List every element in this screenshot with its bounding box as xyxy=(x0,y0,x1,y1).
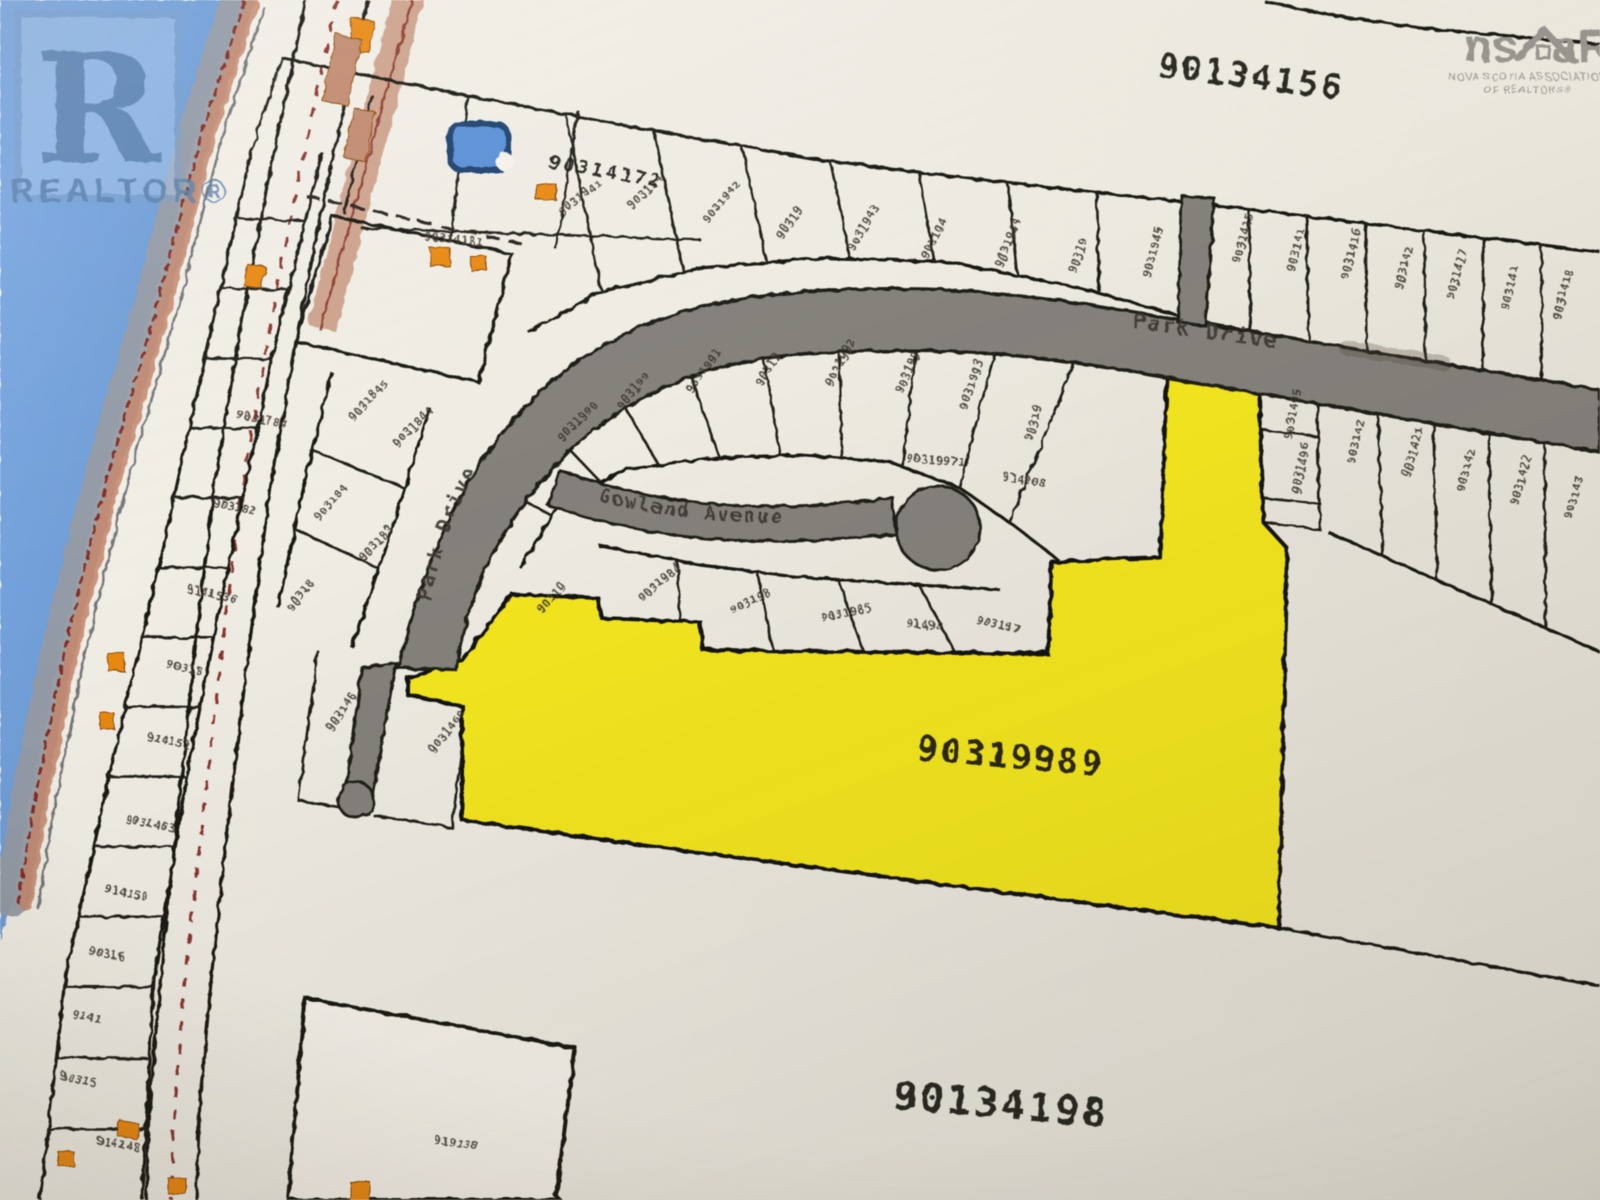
realtor-logo-label: REALTOR® xyxy=(10,172,231,209)
nsar-subtext-1: NOVA SCOTIA ASSOCIATION xyxy=(1448,72,1600,83)
building-footprint xyxy=(100,713,114,729)
building-footprint xyxy=(108,653,124,671)
parcel-number-micro: 9031496 xyxy=(1289,441,1312,495)
parcel-map-photo: Park Drive Park Drive Gowland Avenue 903… xyxy=(0,0,1600,1200)
connector-road xyxy=(1178,196,1214,326)
cul-de-sac-bulb xyxy=(896,486,980,570)
building-footprint xyxy=(350,1182,370,1200)
parcel-number-micro: 90319971 xyxy=(906,451,966,469)
parcel-number-micro: 903182 xyxy=(211,495,257,518)
building-footprint xyxy=(168,1178,186,1194)
parcel-number-micro: 90318 xyxy=(283,576,317,614)
parcel-number-micro: 90319 xyxy=(773,203,806,241)
parcel-number-micro: 9031844 xyxy=(390,403,436,450)
parcel-number-micro: 9031421 xyxy=(1399,425,1426,479)
parcel-number-micro: 90315 xyxy=(59,1069,98,1090)
parcel-number-micro: 9031422 xyxy=(1507,453,1534,507)
building-footprint xyxy=(58,1152,74,1166)
parcel-number-micro: 9031463 xyxy=(123,811,177,835)
parcel-number-micro: 9031942 xyxy=(700,177,744,226)
parcel-number-micro: 9031943 xyxy=(844,201,882,253)
lot-divider xyxy=(1010,356,1077,523)
parcel-number-micro: 903184 xyxy=(312,481,351,524)
house-icon-window xyxy=(1537,46,1549,58)
parcel-number-micro: 90318 xyxy=(165,657,204,678)
parcel-number-micro: 903142 xyxy=(1453,446,1478,493)
lot-divider xyxy=(174,497,243,498)
lot-divider xyxy=(654,130,683,272)
lot-divider xyxy=(190,428,258,429)
lot-divider xyxy=(758,572,773,652)
lot-divider xyxy=(236,218,305,221)
parcel-number-micro: 903197 xyxy=(975,613,1021,636)
lot-strip-edge xyxy=(278,372,332,608)
parcel-number-micro: 90319 xyxy=(1066,235,1091,275)
lot-divider xyxy=(1378,401,1383,556)
lot-divider xyxy=(1424,231,1425,364)
parcel-number-micro: 90316 xyxy=(87,943,126,964)
parcel-number-micro: 914150 xyxy=(103,881,149,904)
parcel-number-micro: 903199 xyxy=(892,349,923,395)
parcel-number-micro: 903142 xyxy=(1391,244,1416,291)
building-footprint xyxy=(244,264,266,289)
parcel-number-bottom: 90134198 xyxy=(891,1073,1111,1138)
parcel-number-top-right: 90134156 xyxy=(1156,46,1347,109)
nsar-logo: ns aR NOVA SCOTIA ASSOCIATION OF REALTOR… xyxy=(1448,20,1600,96)
lot-divider xyxy=(79,916,164,917)
lot-divider xyxy=(65,987,154,988)
parcel-number-micro: 9031415 xyxy=(1229,211,1256,265)
lot-divider xyxy=(1366,223,1367,352)
lot-divider xyxy=(742,146,766,262)
nsar-subtext-2: OF REALTORS® xyxy=(1483,85,1572,96)
parcel-number-micro: 9031418 xyxy=(1549,267,1576,321)
parcel-number-micro: 9031944 xyxy=(992,216,1024,269)
parcel-number-micro: 9031416 xyxy=(1337,227,1364,281)
parcel-number-micro: 9031984 xyxy=(635,560,684,604)
nsar-logo-ar: aR xyxy=(1552,20,1600,72)
lot-divider xyxy=(1433,414,1437,580)
lot-divider xyxy=(1489,426,1491,604)
parcel-number-micro: 903142 xyxy=(1343,418,1368,465)
parcel-number-micro: 90319 xyxy=(1021,403,1045,443)
parcel-boundaries xyxy=(40,98,1600,1200)
parcel-number-micro: 9031945 xyxy=(1139,225,1166,279)
building-footprint xyxy=(470,256,486,270)
parcel-number-micro: 903143 xyxy=(1561,474,1586,521)
parcel-number-micro: 903183 xyxy=(356,522,396,564)
lot-divider xyxy=(1097,192,1099,293)
stub-road-bulb xyxy=(338,782,374,818)
lot-divider xyxy=(1483,238,1484,375)
parcel-number-micro: 903141 xyxy=(1283,226,1308,273)
parcel-number-micro: 903141 xyxy=(1497,264,1522,311)
lot-divider xyxy=(312,450,404,488)
parcel-number-micro: 9031845 xyxy=(346,376,391,424)
lot-divider xyxy=(1544,439,1545,628)
lot-divider xyxy=(205,358,272,360)
lot-strip-edge xyxy=(1328,532,1600,652)
nsar-logo-ns: ns xyxy=(1464,20,1518,72)
building-footprint xyxy=(536,184,556,200)
pond-icon xyxy=(450,124,514,171)
parcel-number-micro: 9141 xyxy=(71,1007,103,1026)
lot-divider xyxy=(1307,216,1308,341)
parcel-number-micro: 9031417 xyxy=(1443,247,1470,301)
parcel-number-micro: 91498 xyxy=(906,616,944,633)
building-footprint xyxy=(430,248,450,266)
bottom-pentagon-parcel xyxy=(288,998,575,1200)
